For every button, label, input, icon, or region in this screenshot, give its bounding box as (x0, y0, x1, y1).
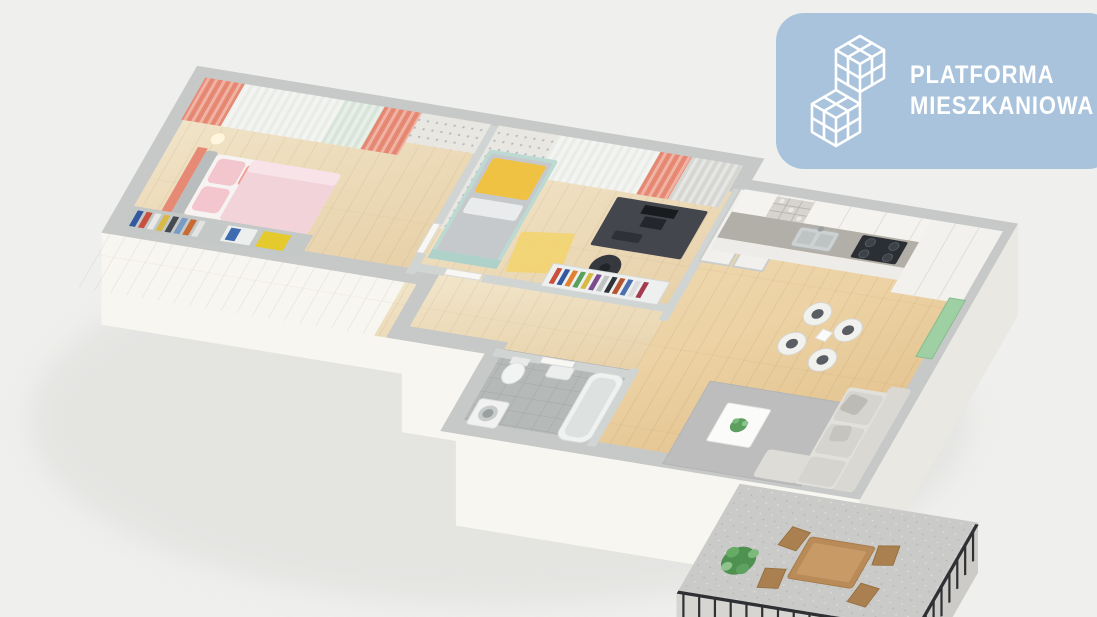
brand-badge: PLATFORMA MIESZKANIOWA (776, 13, 1097, 169)
platforma-mieszkaniowa-logo-icon (810, 32, 886, 150)
brand-text: PLATFORMA MIESZKANIOWA (910, 60, 1094, 122)
brand-line2: MIESZKANIOWA (910, 91, 1094, 122)
brand-line1: PLATFORMA (910, 60, 1094, 91)
